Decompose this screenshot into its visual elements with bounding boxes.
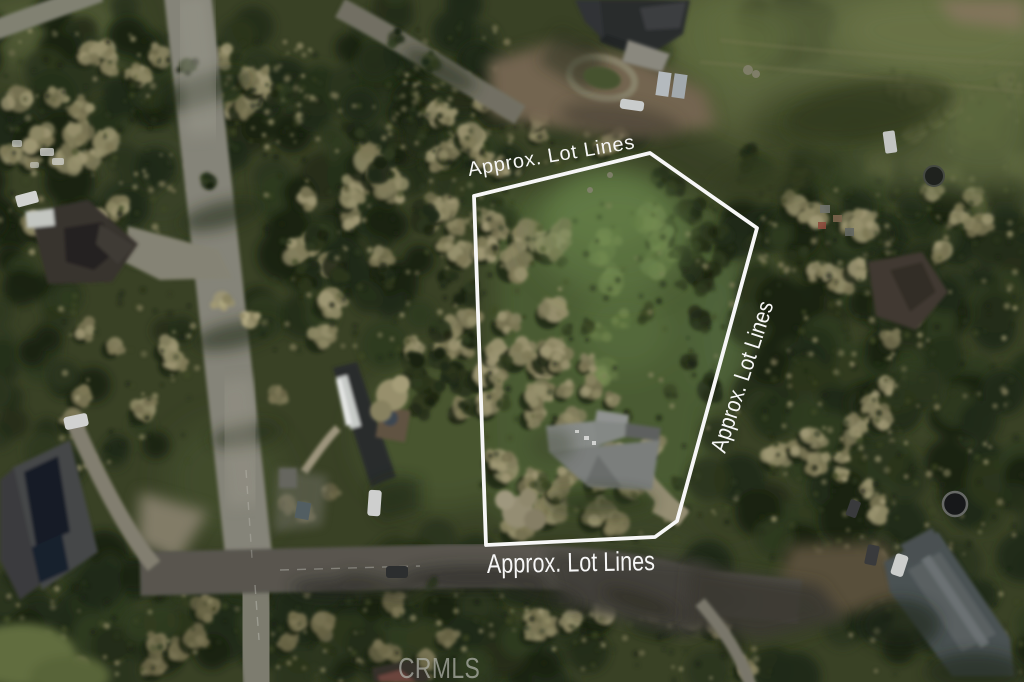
svg-text:CRMLS: CRMLS (398, 651, 480, 682)
svg-text:Approx. Lot Lines: Approx. Lot Lines (487, 547, 656, 580)
